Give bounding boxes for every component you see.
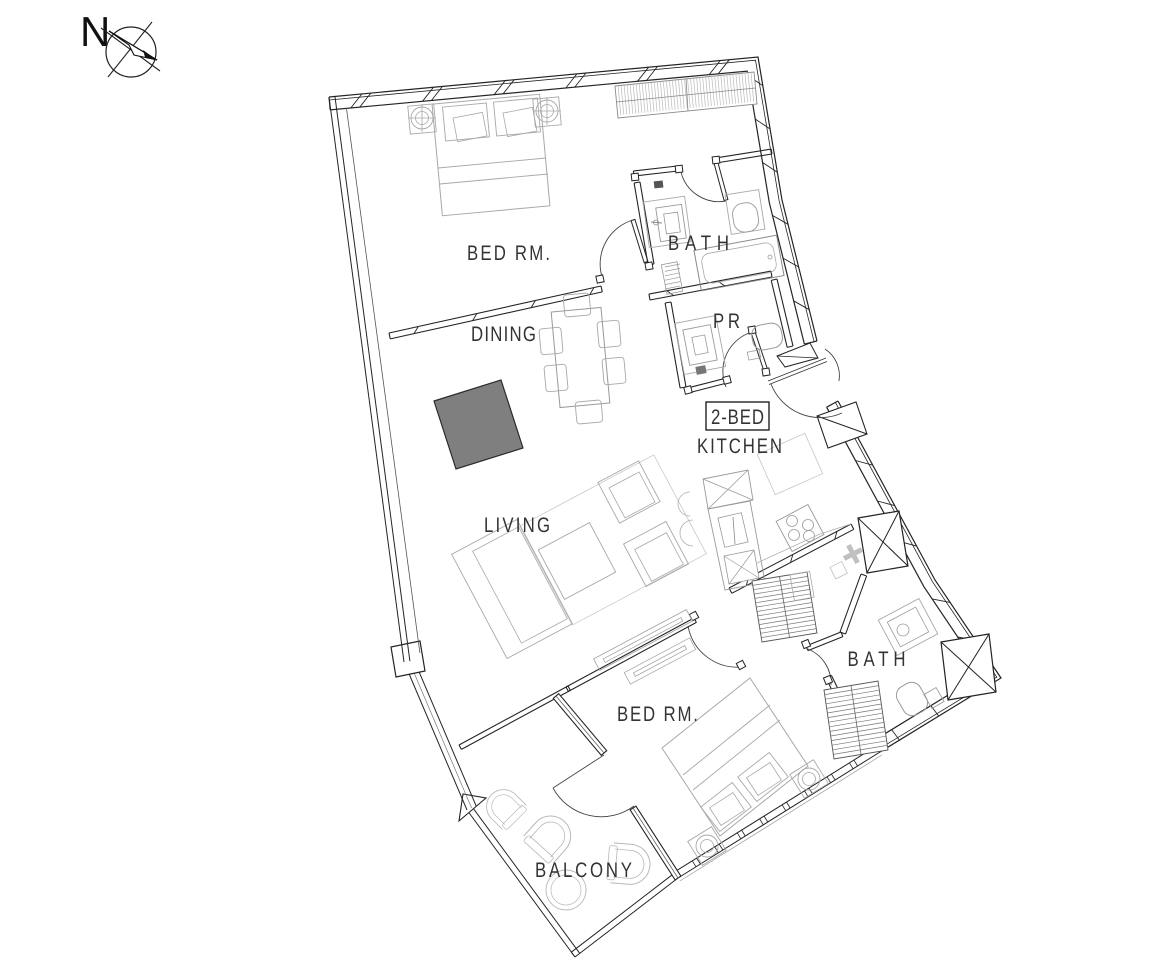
svg-text:2-BED: 2-BED <box>711 406 764 429</box>
svg-text:KITCHEN: KITCHEN <box>697 435 782 458</box>
svg-text:BED RM.: BED RM. <box>617 703 698 726</box>
svg-text:BATH: BATH <box>668 232 729 255</box>
svg-text:BALCONY: BALCONY <box>535 859 632 882</box>
svg-text:LIVING: LIVING <box>484 514 550 537</box>
svg-text:BATH: BATH <box>847 648 905 671</box>
svg-text:BED RM.: BED RM. <box>467 242 550 265</box>
svg-text:PR: PR <box>713 310 740 333</box>
svg-text:DINING: DINING <box>471 323 536 346</box>
